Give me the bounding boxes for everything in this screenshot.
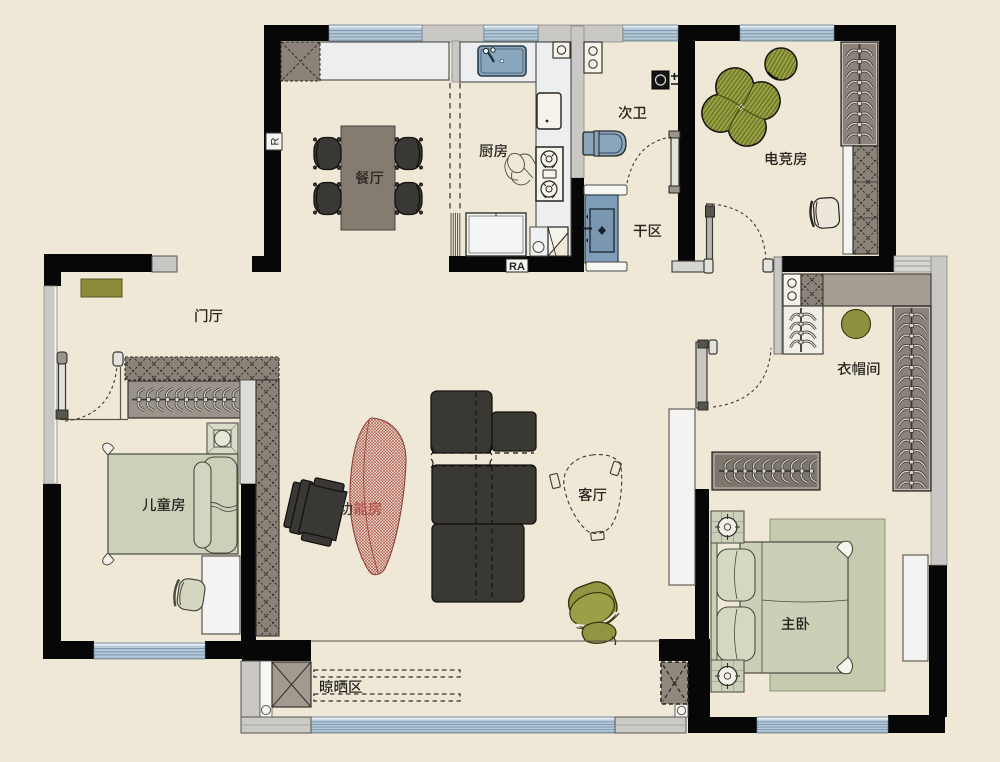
svg-text:RA: RA [509, 261, 525, 273]
svg-text:R: R [270, 137, 282, 145]
